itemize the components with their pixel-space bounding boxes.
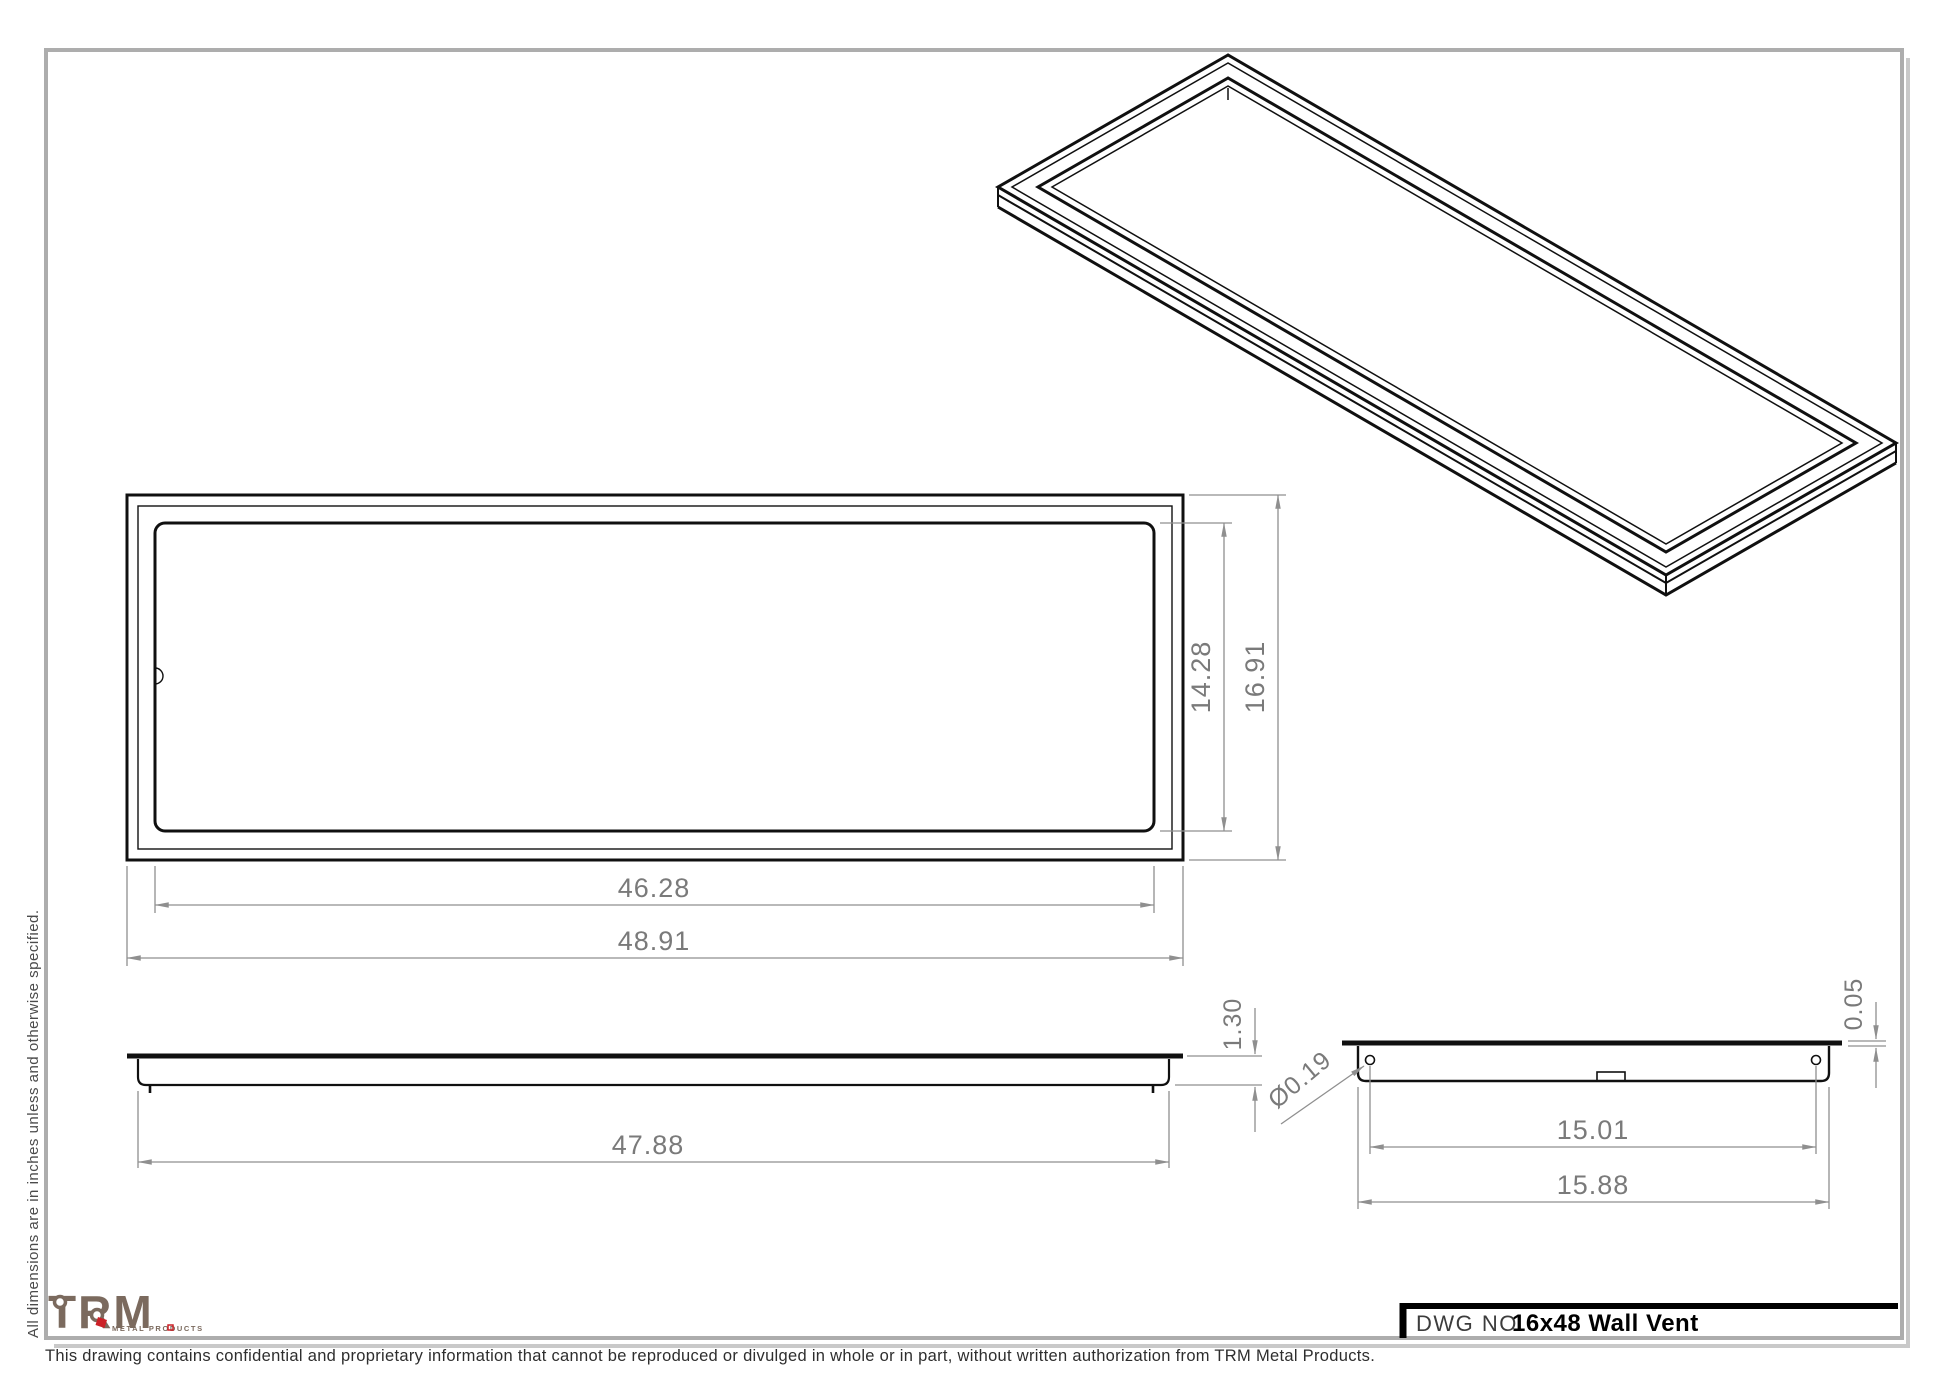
- end-left-hole: [1366, 1056, 1375, 1065]
- front-outer-flange-edge: [127, 495, 1183, 860]
- front-dim-inner-height-text: 14.28: [1186, 641, 1216, 714]
- end-view: Ø0.19 15.01 15.88 0.05: [1263, 978, 1886, 1209]
- end-dim-hole-diameter-text: Ø0.19: [1263, 1046, 1337, 1114]
- front-dim-outer-height-text: 16.91: [1240, 641, 1270, 714]
- end-dim-hole-spacing: 15.01: [1370, 1066, 1816, 1154]
- side-dim-body-length-text: 47.88: [612, 1130, 685, 1160]
- logo-tagline: METAL PRODUCTS: [112, 1324, 204, 1333]
- company-logo: TRM METAL PRODUCTS: [48, 1286, 204, 1338]
- logo-node-icon: [55, 1297, 66, 1308]
- drawing-sheet: 46.28 48.91 14.28 16.91: [0, 0, 1946, 1390]
- dwg-no-label: DWG NO.: [1416, 1311, 1526, 1336]
- iso-inner-lip-outer-edge: [1038, 78, 1856, 552]
- sheet-shadow: [54, 58, 1908, 1346]
- side-dim-depth: 1.30: [1175, 998, 1262, 1132]
- end-pan-outline: [1358, 1046, 1829, 1081]
- title-block: DWG NO. 16x48 Wall Vent: [1400, 1303, 1898, 1338]
- front-dim-inner-width: 46.28: [155, 866, 1154, 913]
- side-dim-body-length: 47.88: [138, 1091, 1169, 1168]
- end-dim-body-width-text: 15.88: [1557, 1170, 1630, 1200]
- iso-inner-opening-edge: [1052, 86, 1842, 544]
- front-view: 46.28 48.91 14.28 16.91: [127, 495, 1286, 966]
- front-flange-step-edge: [138, 506, 1172, 849]
- side-pan-outline: [138, 1059, 1169, 1085]
- iso-flange-lip-edge: [1012, 63, 1882, 567]
- end-dim-flange-thickness: 0.05: [1840, 978, 1886, 1088]
- end-dim-hole-diameter: Ø0.19: [1263, 1046, 1364, 1124]
- end-dim-body-width: 15.88: [1358, 1087, 1829, 1209]
- end-dim-hole-spacing-text: 15.01: [1557, 1115, 1630, 1145]
- dwg-title: 16x48 Wall Vent: [1512, 1310, 1699, 1337]
- drawing-canvas: 46.28 48.91 14.28 16.91: [0, 0, 1946, 1390]
- front-dim-inner-width-text: 46.28: [618, 873, 691, 903]
- end-right-hole: [1812, 1056, 1821, 1065]
- front-dim-outer-width-text: 48.91: [618, 926, 691, 956]
- end-dim-flange-thickness-text: 0.05: [1840, 978, 1868, 1031]
- confidential-note: This drawing contains confidential and p…: [45, 1347, 1375, 1365]
- front-dim-inner-height: 14.28: [1160, 523, 1232, 831]
- side-view: 47.88 1.30: [127, 998, 1262, 1168]
- units-note: All dimensions are in inches unless and …: [25, 909, 42, 1338]
- end-bottom-notch: [1597, 1072, 1625, 1081]
- front-inner-face-edge: [155, 523, 1154, 831]
- isometric-view: [998, 55, 1896, 595]
- side-dim-depth-text: 1.30: [1219, 998, 1247, 1051]
